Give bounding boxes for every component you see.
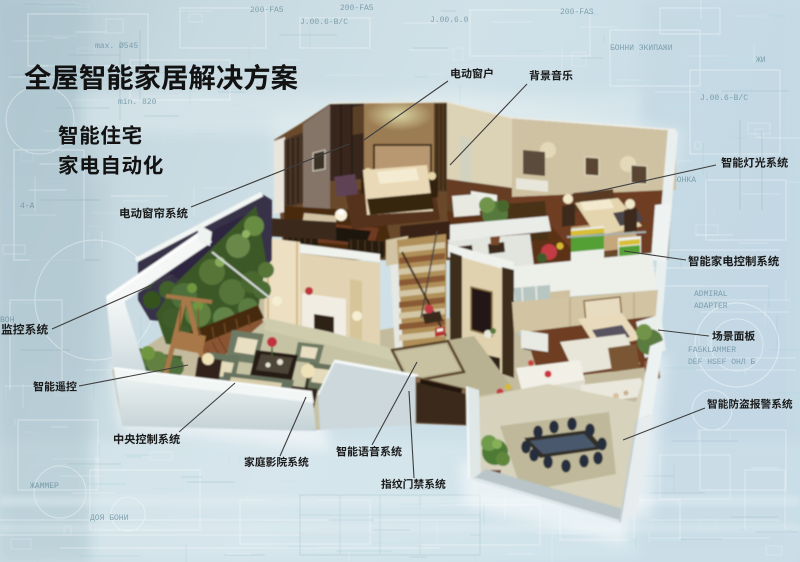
svg-text:200-FAS: 200-FAS — [560, 8, 594, 17]
svg-text:DEF HSEF ОНЛ Б: DEF HSEF ОНЛ Б — [688, 358, 755, 367]
svg-text:4-A: 4-A — [20, 202, 35, 211]
svg-text:200-FA5: 200-FA5 — [250, 6, 284, 15]
svg-text:min. 820: min. 820 — [118, 98, 157, 107]
svg-text:J.00.6.0: J.00.6.0 — [430, 16, 469, 25]
svg-text:ЖИ: ЖИ — [756, 56, 766, 65]
svg-text:ЖАММЕР: ЖАММЕР — [30, 482, 59, 491]
svg-text:ADMIRAL: ADMIRAL — [694, 290, 728, 299]
svg-text:ДОЯ БОНИ: ДОЯ БОНИ — [90, 514, 129, 523]
svg-text:200-FA5: 200-FA5 — [340, 4, 374, 13]
svg-text:ВОН: ВОН — [0, 316, 15, 325]
svg-text:J.00.6-B/C: J.00.6-B/C — [700, 94, 748, 103]
svg-text:БОННИ ЭКИПАЖИ: БОННИ ЭКИПАЖИ — [610, 44, 673, 53]
svg-text:FA5KLAMMER: FA5KLAMMER — [688, 346, 736, 355]
svg-text:J.00.6-B/C: J.00.6-B/C — [300, 18, 348, 27]
svg-text:max. Ø545: max. Ø545 — [95, 42, 138, 51]
svg-text:ADAPTER: ADAPTER — [694, 302, 728, 311]
